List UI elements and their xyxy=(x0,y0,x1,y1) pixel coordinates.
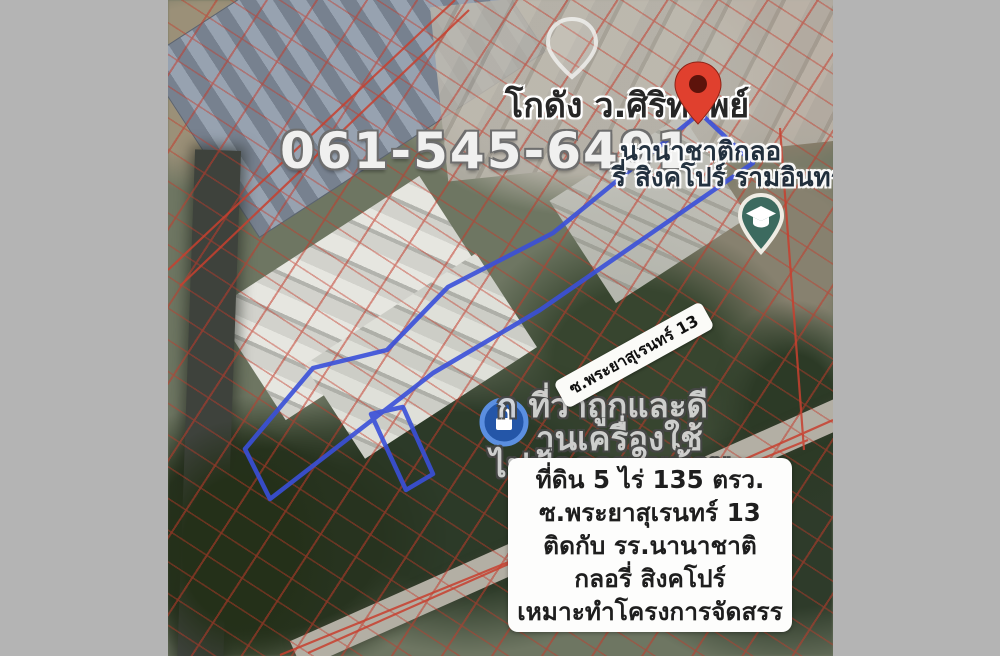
info-line-suitability: เหมาะทำโครงการจัดสรร xyxy=(517,595,782,628)
info-line-area: ที่ดิน 5 ไร่ 135 ตรว. xyxy=(536,463,765,496)
info-line-school: กลอรี่ สิงคโปร์ xyxy=(574,562,725,595)
ghost-pin-icon[interactable] xyxy=(542,16,602,82)
school-place-label-line2: รี่ สิงคโปร์ รามอินทรา xyxy=(612,157,833,198)
info-line-soi: ซ.พระยาสุเรนทร์ 13 xyxy=(539,496,761,529)
red-map-pin-icon[interactable] xyxy=(671,60,725,126)
screenshot-stage: 061-545-6491 โกดัง ว.ศิริทรัพย์ นานาชาติ… xyxy=(0,0,1000,656)
school-poi-icon[interactable] xyxy=(734,192,788,256)
map-canvas[interactable]: 061-545-6491 โกดัง ว.ศิริทรัพย์ นานาชาติ… xyxy=(168,0,833,656)
listing-info-box: ที่ดิน 5 ไร่ 135 ตรว. ซ.พระยาสุเรนทร์ 13… xyxy=(508,458,792,632)
info-line-nextto: ติดกับ รร.นานาชาติ xyxy=(543,529,757,562)
